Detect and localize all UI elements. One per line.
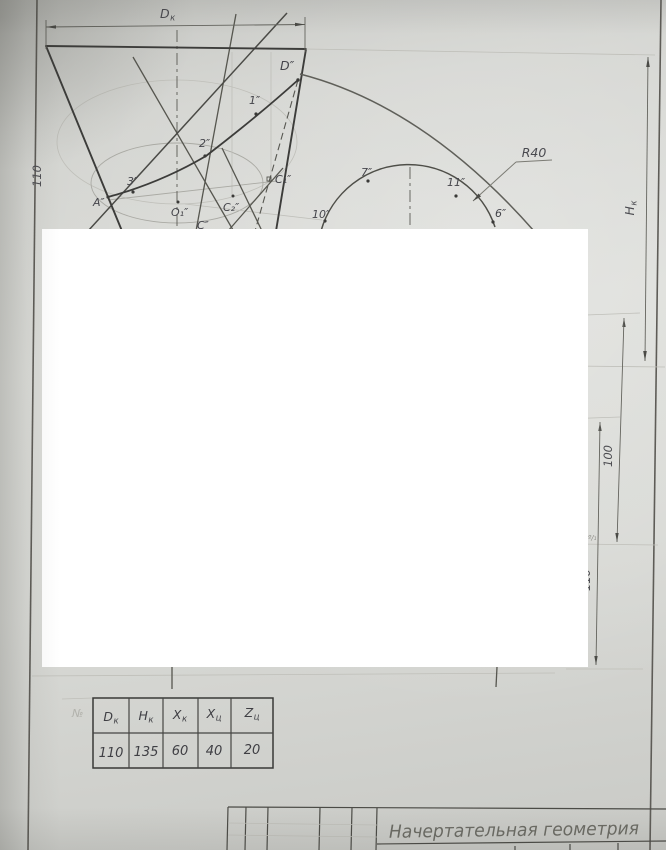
- radius-label: R40: [522, 145, 547, 160]
- centerline-stub: [496, 667, 497, 687]
- construction-line: [62, 698, 93, 699]
- label-point-O1: O₁″: [171, 206, 189, 219]
- cone-right-edge: [276, 49, 306, 231]
- construction-line: [32, 673, 555, 676]
- title-block: Начертательная геометрия: [227, 807, 666, 850]
- parameters-table: № Dк Hк Xк Xц Zц 110 135 60 40 20: [71, 698, 273, 768]
- cone-front-view: D″ 1″ 2″ 3″ A″ O₁″ C₂″ C₁″ C″: [46, 13, 322, 232]
- drawing-photo: D″ 1″ 2″ 3″ A″ O₁″ C₂″ C₁″ C″ R40 10″ 7″…: [0, 0, 666, 850]
- point-11: [454, 194, 457, 197]
- label-point-7: 7″: [361, 166, 373, 179]
- hidden-line: [255, 80, 298, 231]
- base-circles-view: R40 10″ 7″ 11″ 6″: [300, 74, 552, 231]
- construction-line: [222, 148, 262, 231]
- label-point-3: 3″: [127, 175, 139, 188]
- title-block-subject: Начертательная геометрия: [389, 818, 639, 842]
- engineering-drawing: D″ 1″ 2″ 3″ A″ O₁″ C₂″ C₁″ C″ R40 10″ 7″…: [0, 0, 666, 850]
- point-O1: [177, 201, 180, 204]
- frame-left: [28, 0, 37, 850]
- dimension-line: [596, 422, 600, 665]
- table-header: Hк: [138, 708, 154, 726]
- table-value: 60: [172, 744, 189, 759]
- r40-circle-arc: [321, 165, 495, 231]
- dk-dimension-label: Dк: [160, 6, 176, 24]
- dimension-line: [46, 25, 305, 28]
- frame-right: [650, 0, 661, 850]
- label-point-D: D″: [280, 58, 295, 73]
- r40-leader-underline: [516, 160, 552, 162]
- title-block-column: [319, 808, 320, 850]
- point-D: [296, 78, 299, 81]
- construction-line: [196, 14, 236, 231]
- title-block-column: [351, 808, 352, 850]
- label-point-2: 2″: [199, 137, 211, 150]
- title-block-guideline: [228, 823, 377, 825]
- label-point-10: 10″: [312, 208, 331, 221]
- dimension-line: [645, 57, 648, 361]
- label-point-A: A″: [92, 196, 106, 209]
- label-point-1: 1″: [249, 94, 261, 107]
- covered-label-fragment: º/₁: [588, 534, 597, 542]
- point-2: [203, 154, 206, 157]
- label-point-6: 6″: [495, 207, 507, 220]
- cone-top-edge: [46, 46, 306, 49]
- point-6: [491, 220, 494, 223]
- dimension-100: 100 º/₁: [576, 313, 658, 545]
- table-header: Xц: [206, 706, 222, 724]
- table-header: Dк: [103, 709, 119, 727]
- dimension-arrowhead: [594, 656, 597, 665]
- dimension-arrowhead: [46, 25, 56, 28]
- title-block-guideline: [228, 835, 377, 837]
- table-header: Zц: [244, 705, 260, 723]
- hk-dimension-label: Hк: [622, 200, 640, 216]
- title-block-top-line: [228, 807, 666, 809]
- dimension-dk: Dк: [46, 6, 305, 52]
- point-A: [106, 195, 109, 198]
- dimension-100-label: 100: [601, 445, 615, 467]
- title-block-column: [376, 808, 377, 850]
- label-point-C1: C₁″: [275, 173, 292, 186]
- below-box-lines: [32, 667, 555, 699]
- title-block-column: [227, 807, 228, 850]
- extension-line: [306, 49, 655, 55]
- table-value: 20: [244, 743, 261, 758]
- dimension-arrowhead: [646, 57, 650, 67]
- point-3: [131, 190, 134, 193]
- dimension-110-left-label: 110: [30, 165, 44, 187]
- dimension-arrowhead: [615, 533, 618, 542]
- dimension-line: [617, 318, 624, 542]
- table-value: 110: [99, 746, 124, 761]
- title-block-column: [245, 807, 246, 850]
- extension-line: [576, 544, 658, 545]
- table-corner-note: №: [71, 707, 83, 720]
- point-1: [254, 112, 257, 115]
- extension-line: [586, 313, 640, 315]
- table-header: Xк: [172, 707, 188, 725]
- table-value: 40: [206, 744, 223, 759]
- censor-rectangle: [42, 229, 588, 667]
- label-point-C2: C₂″: [223, 201, 240, 214]
- dimension-arrowhead: [295, 23, 305, 27]
- label-point-11: 11″: [447, 176, 466, 189]
- table-value: 135: [134, 745, 159, 760]
- point-7: [366, 179, 369, 182]
- dimension-arrowhead: [643, 351, 647, 361]
- point-C2: [232, 195, 235, 198]
- title-block-column: [267, 807, 268, 850]
